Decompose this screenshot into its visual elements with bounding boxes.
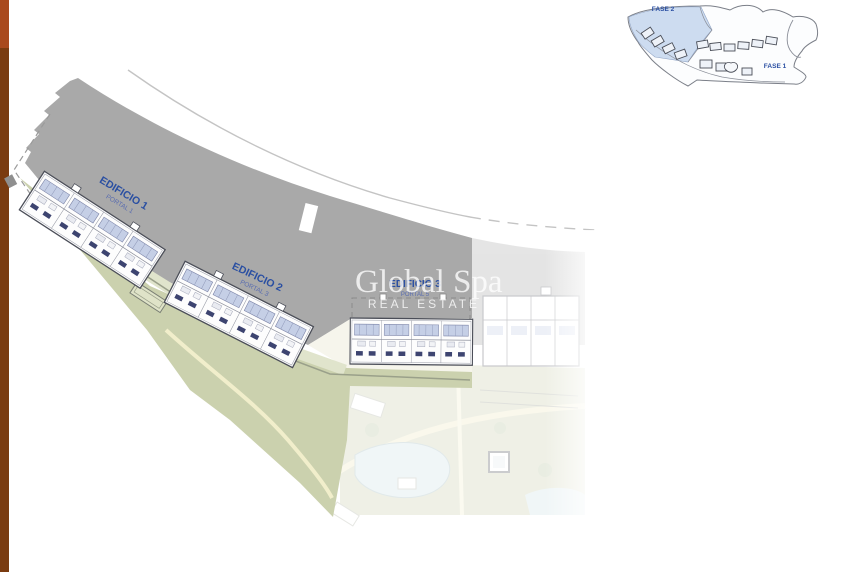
watermark-subtitle: REAL ESTATE <box>368 297 480 311</box>
left-border-stripe-top <box>0 0 9 48</box>
fade-gradient <box>545 230 600 530</box>
watermark-brand: Global Spa <box>355 264 503 300</box>
plan-canvas: EDIFICIO 1 PORTAL 1 EDIFICIO 2 PORTAL 3 … <box>0 0 850 572</box>
building-edificio-3 <box>350 318 473 365</box>
left-border-stripe-bottom <box>0 48 9 572</box>
faded-spa-inner <box>493 456 505 468</box>
faded-tree <box>365 423 379 437</box>
site-plan-page: EDIFICIO 1 PORTAL 1 EDIFICIO 2 PORTAL 3 … <box>0 0 850 572</box>
inset-fase2-label: FASE 2 <box>652 6 675 13</box>
faded-tree <box>494 422 506 434</box>
inset-fase1-label: FASE 1 <box>764 63 787 70</box>
road-curve-dashed <box>470 217 596 230</box>
inset-key-plan: FASE 2 FASE 1 <box>628 5 818 86</box>
